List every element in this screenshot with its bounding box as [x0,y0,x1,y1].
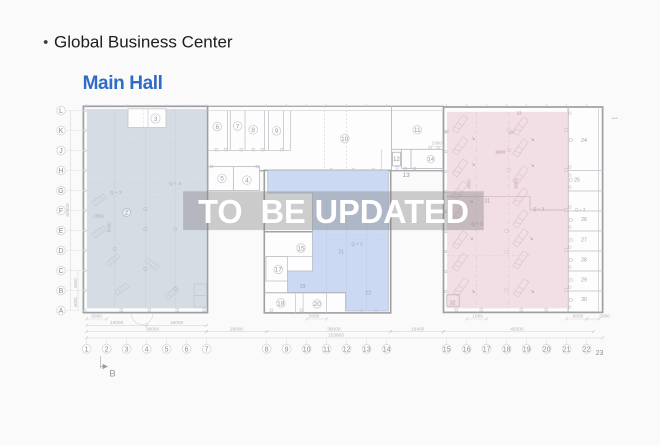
svg-text:12: 12 [343,346,351,353]
svg-text:38000: 38000 [327,326,341,332]
svg-text:6: 6 [215,124,219,131]
svg-text:6000: 6000 [107,222,112,233]
svg-text:18400: 18400 [411,326,425,332]
svg-text:21: 21 [563,346,571,353]
svg-text:8000: 8000 [514,179,519,189]
svg-text:153600: 153600 [328,333,344,339]
svg-text:8000: 8000 [467,179,472,189]
svg-text:20: 20 [313,301,321,308]
svg-text:13: 13 [363,346,371,353]
svg-text:A: A [59,308,64,315]
svg-text:13: 13 [402,172,410,179]
svg-text:H: H [58,168,63,175]
svg-text:2: 2 [105,346,109,353]
svg-text:15: 15 [443,346,451,353]
svg-text:B: B [109,369,115,380]
svg-text:10: 10 [341,136,349,143]
svg-text:23: 23 [596,350,604,357]
svg-text:24: 24 [581,138,587,144]
svg-text:7: 7 [205,346,209,353]
svg-text:32: 32 [450,300,456,306]
svg-text:C: C [58,268,63,275]
svg-text:16: 16 [463,346,471,353]
svg-text:11: 11 [414,127,421,134]
svg-text:8: 8 [265,346,269,353]
svg-text:3000: 3000 [599,314,610,320]
svg-text:9: 9 [285,346,289,353]
svg-text:6000: 6000 [73,278,78,288]
svg-text:Q = 3: Q = 3 [575,207,586,212]
svg-text:Main Hall: Main Hall [83,73,163,94]
svg-text:28: 28 [581,258,587,264]
svg-text:30: 30 [581,297,587,303]
svg-text:1900: 1900 [495,149,506,154]
svg-text:8: 8 [251,127,255,134]
svg-text:7: 7 [236,123,240,130]
svg-text:2693: 2693 [93,214,104,220]
svg-text:18000: 18000 [170,320,184,326]
svg-text:22: 22 [583,346,591,353]
svg-text:Q + 3: Q + 3 [169,181,181,187]
svg-text:10: 10 [303,346,311,353]
svg-text:F: F [59,208,63,215]
svg-text:1000: 1000 [432,141,443,146]
svg-text:11: 11 [323,346,330,353]
svg-text:6000: 6000 [73,297,78,307]
svg-text:19: 19 [300,284,306,290]
svg-text:31: 31 [485,198,491,204]
svg-text:14: 14 [428,157,434,163]
svg-text:27: 27 [581,238,587,244]
svg-text:18000: 18000 [230,326,244,332]
svg-text:J: J [59,148,63,155]
svg-text:6: 6 [185,346,189,353]
svg-text:1000: 1000 [472,314,483,320]
svg-text:6000: 6000 [91,314,102,320]
svg-text:22: 22 [365,291,371,297]
svg-text:5: 5 [165,346,169,353]
svg-text:18: 18 [277,300,285,307]
svg-text:4: 4 [145,346,149,353]
svg-text:TO BE UPDATED: TO BE UPDATED [198,194,469,231]
svg-text:60000: 60000 [65,203,71,217]
svg-text:45000: 45000 [510,326,524,332]
svg-text:25: 25 [574,177,580,183]
svg-text:9: 9 [275,128,279,135]
svg-text:36000: 36000 [146,326,160,332]
svg-text:4: 4 [245,177,249,184]
svg-text:21: 21 [338,249,344,255]
svg-text:17: 17 [483,346,491,353]
svg-text:17: 17 [275,267,283,274]
svg-text:3: 3 [125,346,129,353]
svg-text:29: 29 [581,277,587,283]
svg-text:3: 3 [154,116,158,123]
svg-text:23: 23 [516,110,522,115]
svg-text:20: 20 [543,346,551,353]
svg-text:18000: 18000 [110,320,124,326]
svg-text:6000: 6000 [573,314,584,320]
svg-text:Q + 3: Q + 3 [110,190,122,196]
svg-text:Q = 3: Q = 3 [533,207,545,212]
svg-text:15: 15 [297,245,305,252]
svg-text:L: L [59,108,63,115]
svg-text:E: E [59,228,64,235]
svg-text:12: 12 [393,157,400,163]
svg-text:Q + 3: Q + 3 [351,241,363,246]
svg-text:D: D [58,248,63,255]
svg-text:G: G [58,188,63,195]
svg-text:14: 14 [383,346,391,353]
svg-text:Global Business Center: Global Business Center [54,33,233,52]
svg-text:B: B [59,288,64,295]
svg-text:19: 19 [523,346,531,353]
svg-text:5: 5 [220,176,224,183]
svg-text:26: 26 [581,217,587,223]
svg-text:2000: 2000 [309,314,320,320]
svg-text:1: 1 [85,346,89,353]
svg-text:18: 18 [503,346,511,353]
svg-text:K: K [59,128,64,135]
